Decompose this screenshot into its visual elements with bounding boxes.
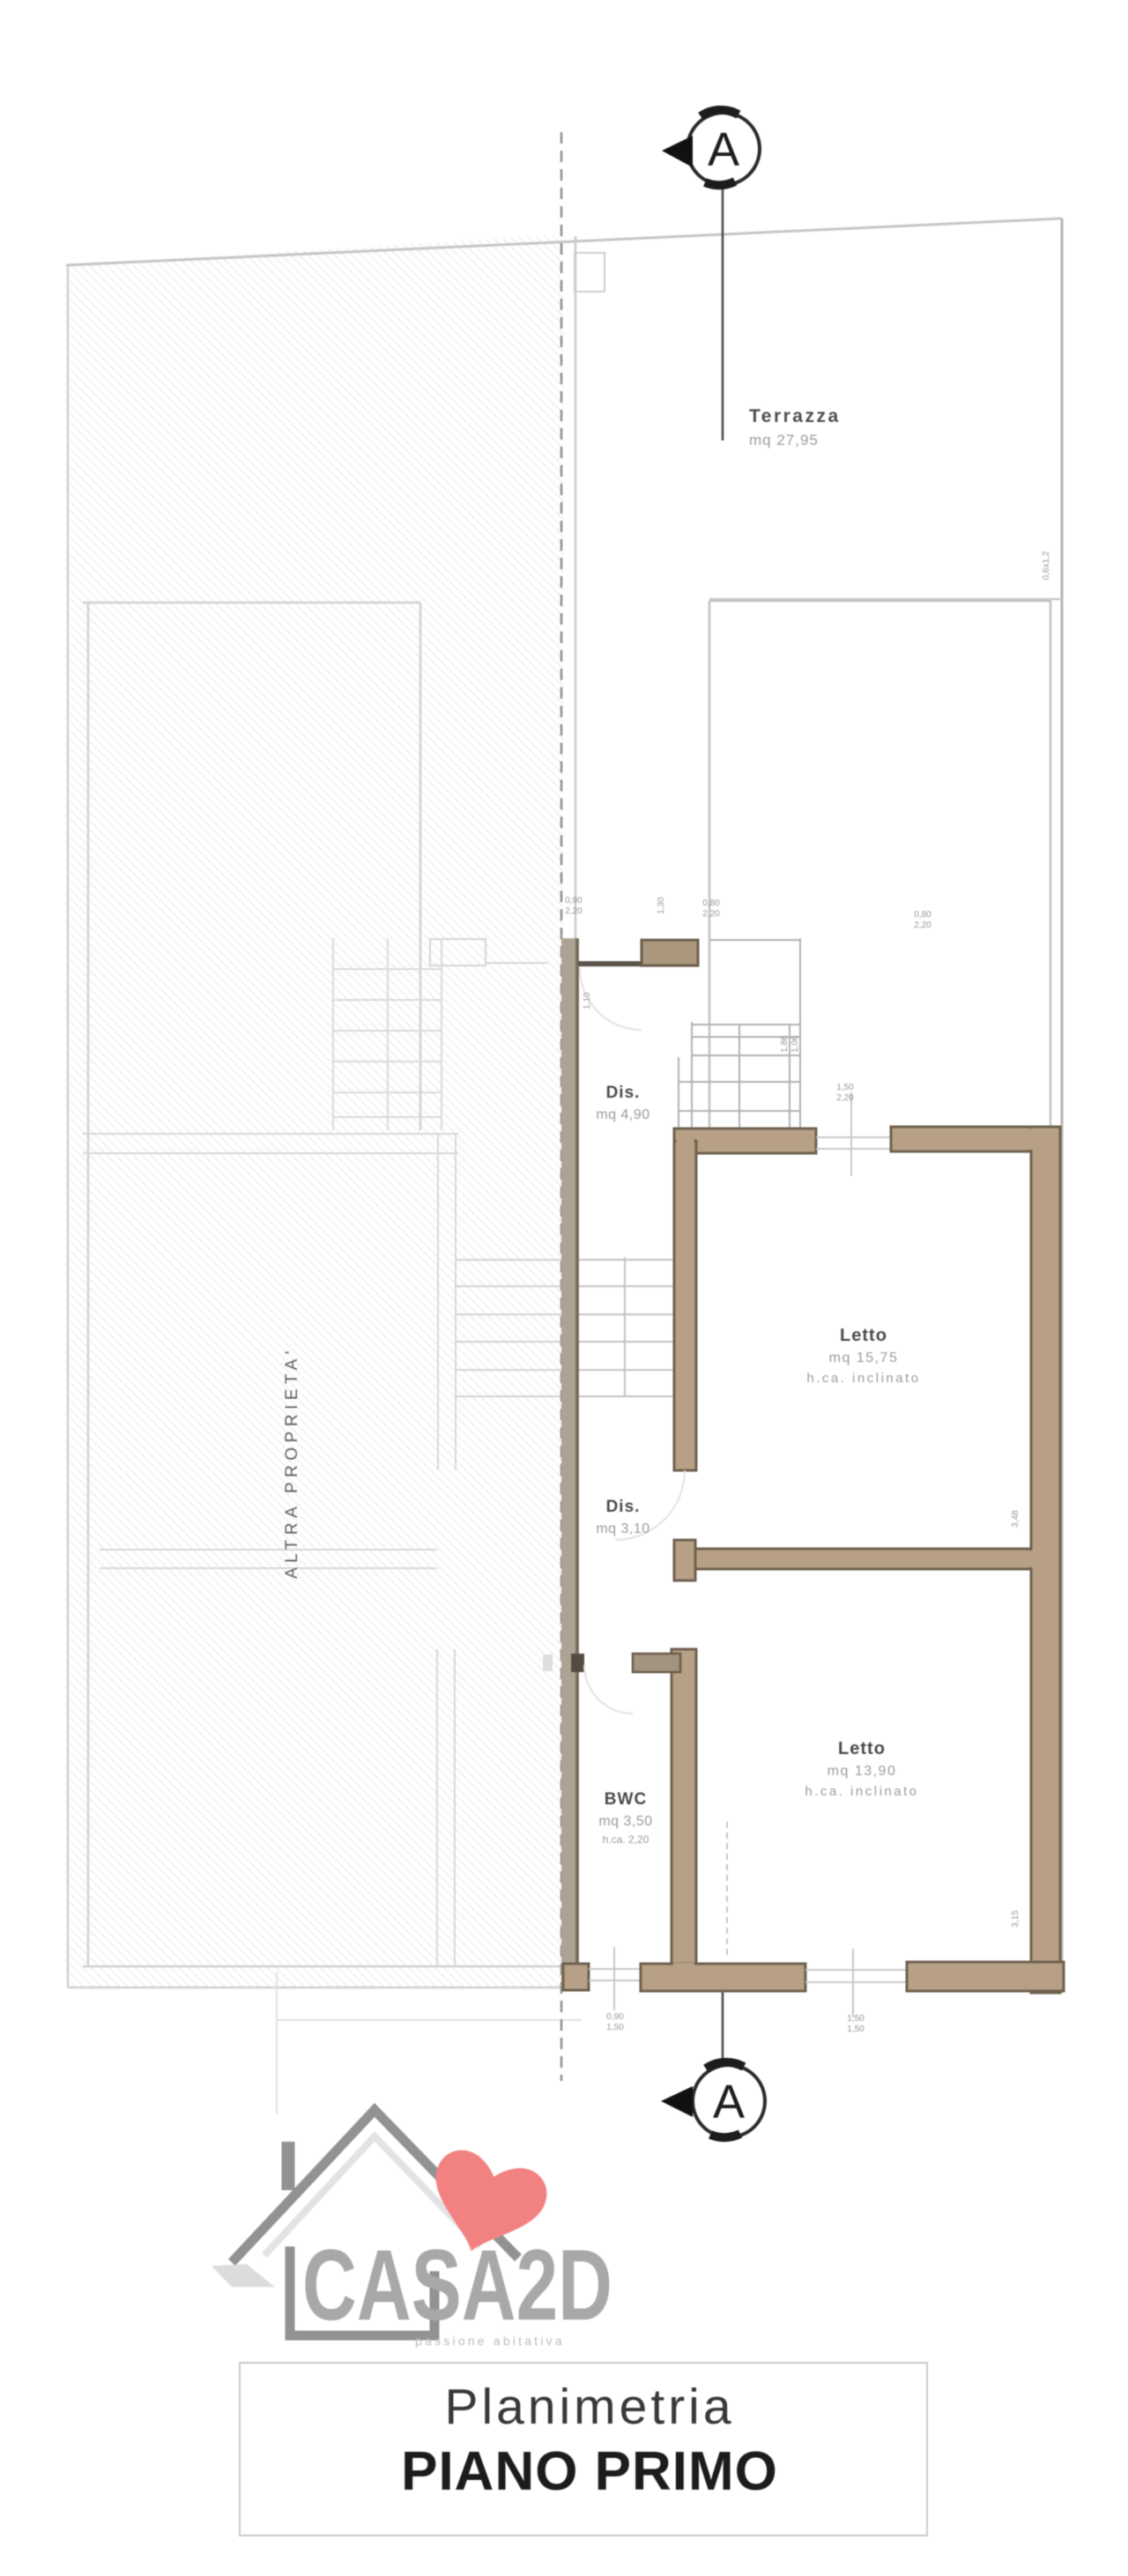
svg-text:PIANO PRIMO: PIANO PRIMO (401, 2441, 778, 2502)
svg-text:mq 4,90: mq 4,90 (596, 1107, 649, 1122)
svg-text:0,90: 0,90 (565, 896, 583, 906)
svg-text:A: A (713, 2076, 745, 2128)
svg-text:A: A (708, 123, 739, 176)
svg-text:2,20: 2,20 (702, 909, 720, 919)
svg-text:3,15: 3,15 (1011, 1910, 1020, 1928)
svg-text:3,48: 3,48 (1011, 1510, 1020, 1528)
svg-text:ALTRA PROPRIETA': ALTRA PROPRIETA' (283, 1346, 301, 1579)
svg-text:Dis.: Dis. (606, 1498, 641, 1516)
svg-text:mq 15,75: mq 15,75 (829, 1351, 899, 1366)
svg-text:Letto: Letto (838, 1739, 886, 1758)
svg-text:BWC: BWC (605, 1790, 647, 1809)
svg-text:1,50: 1,50 (847, 2025, 865, 2034)
svg-text:2,20: 2,20 (914, 921, 931, 930)
svg-text:2,20: 2,20 (836, 1093, 854, 1103)
svg-text:1,30: 1,30 (657, 897, 666, 914)
svg-text:1,10: 1,10 (583, 992, 592, 1010)
svg-text:1,50: 1,50 (847, 2014, 865, 2024)
svg-text:CASA2D: CASA2D (302, 2230, 612, 2342)
svg-text:mq 3,10: mq 3,10 (596, 1521, 649, 1536)
svg-text:1,06: 1,06 (790, 1035, 800, 1053)
svg-text:1,86: 1,86 (780, 1035, 790, 1053)
svg-text:2,20: 2,20 (565, 907, 583, 916)
svg-text:1,50: 1,50 (836, 1083, 854, 1092)
svg-text:0,80: 0,80 (914, 910, 931, 920)
svg-text:0,90: 0,90 (606, 2012, 624, 2022)
svg-text:h.ca. 2,20: h.ca. 2,20 (603, 1833, 649, 1846)
svg-text:h.ca. inclinato: h.ca. inclinato (806, 1371, 920, 1386)
svg-text:passione abitativa: passione abitativa (415, 2334, 565, 2348)
svg-text:mq 27,95: mq 27,95 (749, 432, 819, 448)
svg-text:Dis.: Dis. (606, 1084, 641, 1102)
svg-text:1,50: 1,50 (606, 2023, 624, 2032)
svg-text:mq 13,90: mq 13,90 (827, 1764, 897, 1779)
svg-text:Terrazza: Terrazza (749, 406, 841, 426)
svg-text:0,80: 0,80 (702, 899, 720, 908)
svg-text:h.ca. inclinato: h.ca. inclinato (805, 1784, 918, 1799)
svg-text:0,6x1,2: 0,6x1,2 (1042, 551, 1051, 580)
svg-text:mq 3,50: mq 3,50 (598, 1814, 652, 1829)
svg-text:Letto: Letto (840, 1326, 887, 1345)
svg-text:Planimetria: Planimetria (444, 2379, 734, 2435)
